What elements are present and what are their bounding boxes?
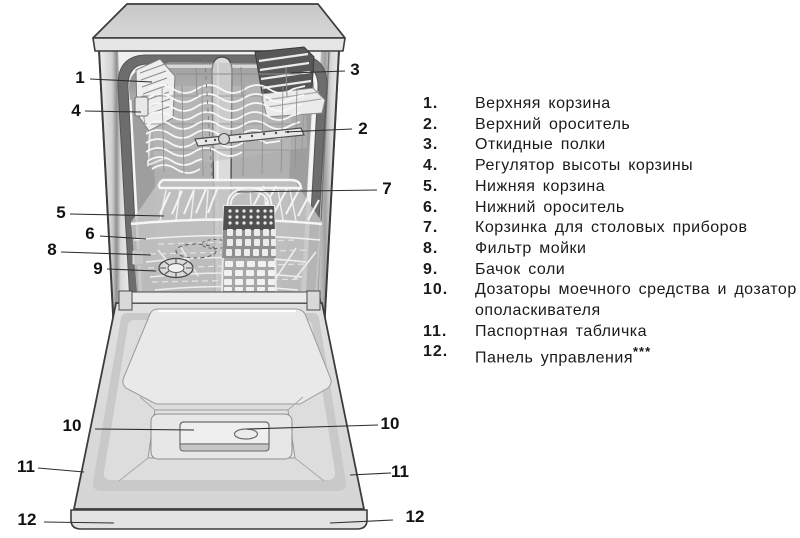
svg-text:2: 2 <box>358 119 367 138</box>
svg-text:10: 10 <box>381 414 400 433</box>
svg-text:10: 10 <box>63 416 82 435</box>
svg-text:6: 6 <box>85 224 94 243</box>
svg-text:3: 3 <box>350 60 359 79</box>
svg-text:5: 5 <box>56 203 65 222</box>
svg-text:12: 12 <box>18 510 37 529</box>
svg-text:4: 4 <box>71 101 81 120</box>
svg-text:11: 11 <box>17 457 35 476</box>
svg-text:11: 11 <box>391 462 409 481</box>
svg-text:7: 7 <box>382 179 391 198</box>
svg-text:12: 12 <box>406 507 425 526</box>
svg-text:8: 8 <box>47 240 56 259</box>
svg-text:9: 9 <box>93 259 102 278</box>
svg-text:1: 1 <box>75 68 84 87</box>
